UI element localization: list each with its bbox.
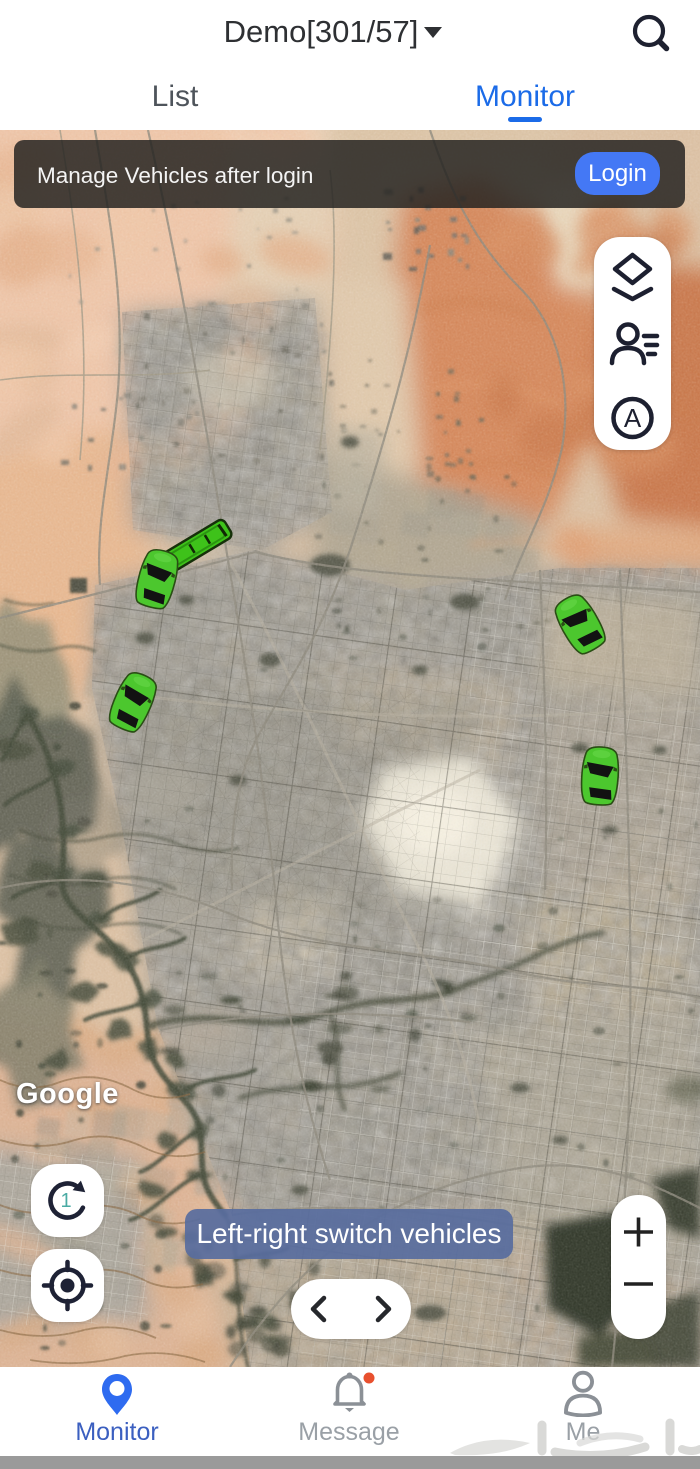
svg-text:A: A bbox=[624, 403, 642, 433]
svg-text:1: 1 bbox=[60, 1190, 71, 1212]
